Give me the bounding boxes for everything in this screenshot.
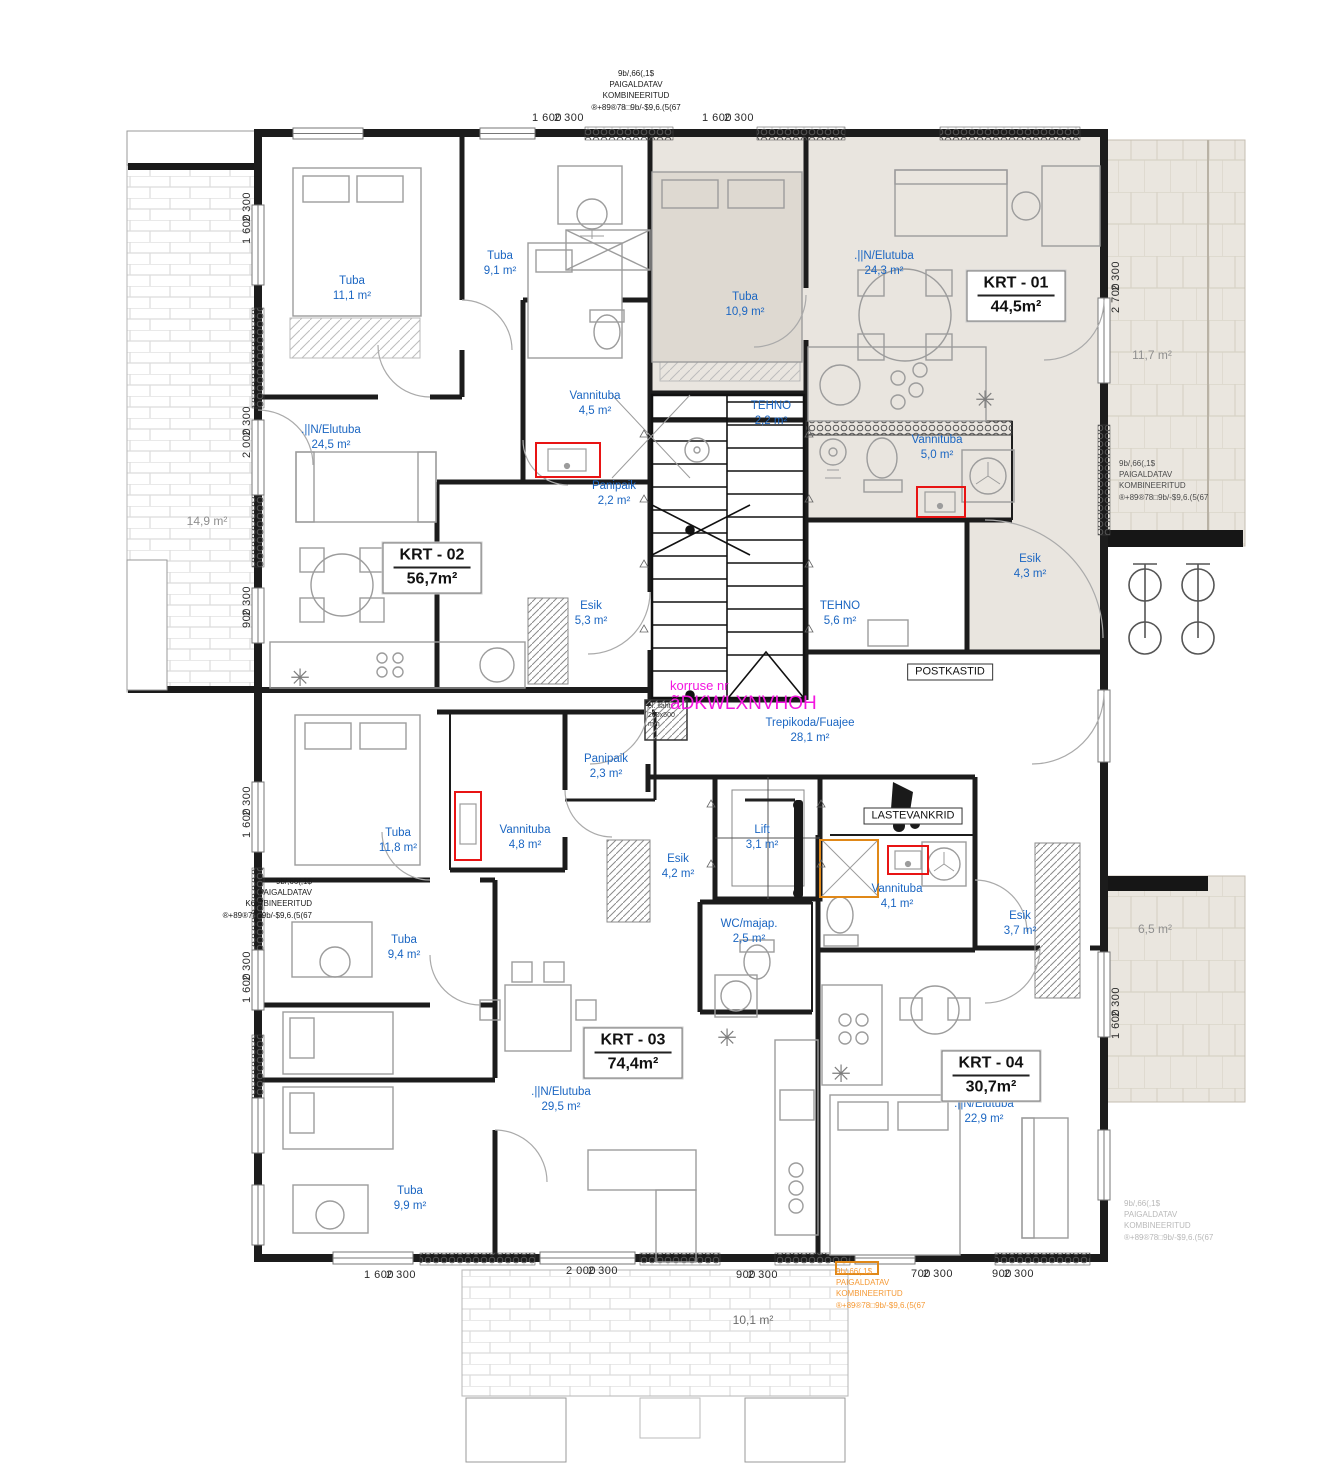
room-name: Lift [746,823,779,838]
annotation-line: PAIGALDATAV [836,1277,925,1288]
annotation-line: 9b/,66(,1$ [1124,1198,1213,1209]
room-label: Vannituba4,1 m² [872,882,923,912]
dimension-label: 1 6002 300 [702,112,754,124]
annotation-line: KOMBINEERITUD [591,90,680,101]
door-openings [378,300,654,764]
area-label: 6,5 m² [1138,922,1172,936]
dimension-height: 2 300 [1004,1268,1034,1280]
dimension-height: 2 300 [241,951,253,981]
room-name: .||N/Elutuba [854,249,914,264]
room-name: Esik [662,852,695,867]
room-name: Tuba [394,1184,427,1199]
annotation-line: KOMBINEERITUD [1119,480,1208,491]
annotation-block: 9b/,66(,1$PAIGALDATAVKOMBINEERITUD®+89®7… [1124,1198,1213,1243]
apartment-id: KRT - 03 [595,1031,672,1054]
room-name: .||N/Elutuba [301,423,361,438]
annotation-line: PAIGALDATAV [223,887,312,898]
annotation-line: ®+89®78□9b/-$9,6.(5(67 [1124,1232,1213,1243]
area-label: 11,7 m² [1132,348,1172,362]
room-name: Vannituba [500,823,551,838]
floor-plan-canvas: ✳ ✳ ✳ ✳ [0,0,1321,1480]
apartment-id: KRT - 04 [953,1054,1030,1077]
room-label: TEHNO2,2 m² [751,399,791,429]
dimension-label: 9002 300 [992,1268,1034,1280]
shaft-note-line2: 200x500 [648,712,675,719]
dimension-height: 2 300 [386,1269,416,1281]
room-label: Tuba11,8 m² [379,826,417,856]
annotation-line: PAIGALDATAV [591,79,680,90]
apartment-id: KRT - 01 [978,274,1055,297]
room-area: 4,1 m² [872,897,923,912]
svg-text:✳: ✳ [290,665,310,692]
stair-core-floor [650,393,806,700]
right-lower-balcony [1105,876,1245,1102]
area-label: 10,1 m² [733,1313,774,1327]
plan-sign: LASTEVANKRID [864,808,963,825]
dimension-height: 2 300 [923,1268,953,1280]
floor-number-note: korruse nr ãDKWLXNVHOH [670,678,817,715]
room-label: Tuba10,9 m² [726,290,765,320]
room-label: Trepikoda/Fuajee28,1 m² [765,716,854,746]
room-name: .||N/Elutuba [531,1085,591,1100]
room-name: Panipaik [584,752,628,767]
room-label: Panipaik2,2 m² [592,479,636,509]
room-area: 4,8 m² [500,838,551,853]
annotation-line: KOMBINEERITUD [1124,1220,1213,1231]
annotation-line: ®+89®78□9b/-$9,6.(5(67 [223,910,312,921]
apartment-badge: KRT - 0256,7m² [383,543,482,594]
room-name: Tuba [333,274,371,289]
room-area: 2,2 m² [751,414,791,429]
room-area: 2,3 m² [584,767,628,782]
apartment-area: 44,5m² [978,297,1055,318]
room-name: Tuba [388,933,421,948]
room-area: 4,2 m² [662,867,695,882]
apartment-area: 74,4m² [595,1054,672,1075]
room-label: Tuba11,1 m² [333,274,371,304]
annotation-line: 9b/,66(,1$ [1119,458,1208,469]
room-label: Tuba9,9 m² [394,1184,427,1214]
plan-sign: POSTKASTID [907,664,993,681]
dimension-height: 2 300 [241,406,253,436]
room-area: 9,4 m² [388,948,421,963]
room-label: Esik3,7 m² [1004,909,1037,939]
annotation-line: 9b/,66(,1$ [836,1266,925,1277]
room-area: 5,3 m² [575,614,608,629]
apartment-badge: KRT - 0144,5m² [967,271,1066,322]
annotation-block: 9b/,66(,1$PAIGALDATAVKOMBINEERITUD®+89®7… [1119,458,1208,503]
annotation-line: ®+89®78□9b/-$9,6.(5(67 [836,1300,925,1311]
apartment-id: KRT - 02 [394,546,471,569]
svg-text:✳: ✳ [717,1025,737,1052]
annotation-block: 9b/,66(,1$PAIGALDATAVKOMBINEERITUD®+89®7… [836,1266,925,1311]
room-area: 11,8 m² [379,841,417,856]
dimension-label: 1 6002 300 [241,951,253,1003]
room-name: Esik [575,599,608,614]
bottom-balcony [462,1270,848,1462]
dimension-label: 1 6002 300 [1110,987,1122,1039]
dimension-label: 1 6002 300 [532,112,584,124]
dimension-height: 2 300 [1110,987,1122,1017]
dimension-label: 1 6002 300 [241,192,253,244]
annotation-line: 9b/,66(,1$ [591,68,680,79]
apartment-badge: KRT - 0374,4m² [584,1028,683,1079]
room-name: Tuba [726,290,765,305]
room-label: TEHNO5,6 m² [820,599,860,629]
room-label: Vannituba5,0 m² [912,433,963,463]
room-name: Vannituba [872,882,923,897]
shaft-note: el. šaht 200x500 mm [648,702,675,729]
room-label: .||N/Elutuba24,5 m² [301,423,361,453]
dimension-height: 2 300 [748,1269,778,1281]
svg-text:✳: ✳ [831,1061,851,1088]
svg-text:✳: ✳ [975,387,995,414]
room-area: 28,1 m² [765,731,854,746]
annotation-line: KOMBINEERITUD [223,898,312,909]
dimension-label: 2 0002 300 [566,1265,618,1277]
room-label: Esik4,2 m² [662,852,695,882]
shaft-note-line3: mm [648,721,660,728]
annotation-block: 9b/,66(,1$PAIGALDATAVKOMBINEERITUD®+89®7… [223,876,312,921]
room-area: 24,5 m² [301,438,361,453]
annotation-line: ®+89®78□9b/-$9,6.(5(67 [1119,492,1208,503]
room-label: Vannituba4,8 m² [500,823,551,853]
apartment-area: 56,7m² [394,569,471,590]
room-label: Tuba9,4 m² [388,933,421,963]
room-label: Tuba9,1 m² [484,249,517,279]
room-area: 24,3 m² [854,264,914,279]
room-label: Esik5,3 m² [575,599,608,629]
dimension-label: 9002 300 [241,586,253,628]
room-name: Tuba [379,826,417,841]
dimension-height: 2 300 [1110,261,1122,291]
room-name: Panipaik [592,479,636,494]
room-area: 2,2 m² [592,494,636,509]
room-label: Vannituba4,5 m² [570,389,621,419]
room-area: 22,9 m² [954,1112,1014,1127]
left-balcony [127,131,258,693]
dimension-label: 9002 300 [736,1269,778,1281]
room-name: Esik [1014,552,1047,567]
annotation-line: PAIGALDATAV [1119,469,1208,480]
room-area: 2,5 m² [721,932,778,947]
room-area: 3,7 m² [1004,924,1037,939]
dimension-height: 2 300 [241,586,253,616]
annotation-block: 9b/,66(,1$PAIGALDATAVKOMBINEERITUD®+89®7… [591,68,680,113]
room-name: Esik [1004,909,1037,924]
floor-note-line1: korruse nr [670,678,817,693]
room-label: .||N/Elutuba22,9 m² [954,1097,1014,1127]
shaft-note-line1: el. šaht [648,703,671,710]
room-name: WC/majap. [721,917,778,932]
room-area: 10,9 m² [726,305,765,320]
room-label: .||N/Elutuba29,5 m² [531,1085,591,1115]
room-label: Lift3,1 m² [746,823,779,853]
annotation-line: ®+89®78□9b/-$9,6.(5(67 [591,102,680,113]
dimension-label: 1 6002 300 [241,786,253,838]
room-area: 29,5 m² [531,1100,591,1115]
room-area: 3,1 m² [746,838,779,853]
dimension-label: 2 7002 300 [1110,261,1122,313]
annotation-line: KOMBINEERITUD [836,1288,925,1299]
room-name: Trepikoda/Fuajee [765,716,854,731]
dimension-height: 2 300 [241,192,253,222]
insulated-wall [806,421,1012,435]
dimension-height: 2 300 [588,1265,618,1277]
dimension-label: 1 6002 300 [364,1269,416,1281]
room-label: WC/majap.2,5 m² [721,917,778,947]
room-name: TEHNO [820,599,860,614]
floor-note-line2: ãDKWLXNVHOH [670,693,817,715]
floorplan-linework: ✳ ✳ ✳ ✳ [0,0,1321,1480]
room-area: 9,1 m² [484,264,517,279]
room-area: 4,5 m² [570,404,621,419]
dimension-label: 2 0002 300 [241,406,253,458]
room-area: 4,3 m² [1014,567,1047,582]
room-name: TEHNO [751,399,791,414]
annotation-line: 9b/,66(,1$ [223,876,312,887]
dimension-height: 2 300 [554,112,584,124]
room-name: Vannituba [570,389,621,404]
room-name: Tuba [484,249,517,264]
room-name: Vannituba [912,433,963,448]
room-label: .||N/Elutuba24,3 m² [854,249,914,279]
bicycle-icons [1129,564,1214,654]
area-label: 14,9 m² [187,514,228,528]
apartment-area: 30,7m² [953,1077,1030,1098]
room-area: 5,0 m² [912,448,963,463]
dimension-height: 2 300 [724,112,754,124]
dimension-height: 2 300 [241,786,253,816]
room-area: 5,6 m² [820,614,860,629]
room-label: Panipaik2,3 m² [584,752,628,782]
room-area: 11,1 m² [333,289,371,304]
annotation-line: PAIGALDATAV [1124,1209,1213,1220]
room-label: Esik4,3 m² [1014,552,1047,582]
apartment-badge: KRT - 0430,7m² [942,1051,1041,1102]
room-area: 9,9 m² [394,1199,427,1214]
